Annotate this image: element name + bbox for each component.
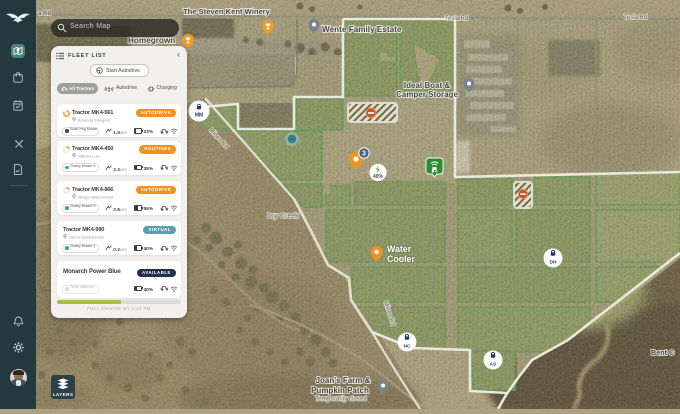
svg-text:Water: Water bbox=[387, 244, 412, 254]
svg-text:DH: DH bbox=[550, 260, 557, 266]
svg-text:40%: 40% bbox=[373, 174, 384, 180]
svg-text:AS: AS bbox=[490, 362, 497, 368]
svg-text:Ideal Boat &: Ideal Boat & bbox=[404, 81, 450, 90]
svg-text:3: 3 bbox=[362, 151, 366, 158]
svg-text:Temporarily closed: Temporarily closed bbox=[315, 396, 367, 403]
svg-text:The Steven Kent Winery: The Steven Kent Winery bbox=[183, 7, 271, 16]
svg-text:Pumpkin Patch: Pumpkin Patch bbox=[311, 386, 369, 395]
svg-text:Joan's Farm &: Joan's Farm & bbox=[316, 376, 371, 385]
svg-text:a Rd: a Rd bbox=[38, 11, 51, 17]
svg-text:Tesla Rd: Tesla Rd bbox=[445, 16, 468, 22]
svg-text:NC: NC bbox=[404, 344, 411, 350]
svg-text:MM: MM bbox=[195, 113, 203, 119]
svg-text:Dry Creek: Dry Creek bbox=[267, 213, 299, 220]
svg-text:Wente Family Estate: Wente Family Estate bbox=[322, 25, 402, 34]
svg-text:Homegrown: Homegrown bbox=[128, 36, 175, 45]
svg-text:Tesla Rd: Tesla Rd bbox=[624, 15, 647, 21]
svg-text:Camper Storage: Camper Storage bbox=[396, 90, 458, 99]
svg-text:Cooler: Cooler bbox=[387, 254, 415, 264]
svg-text:Bent C: Bent C bbox=[651, 348, 674, 357]
